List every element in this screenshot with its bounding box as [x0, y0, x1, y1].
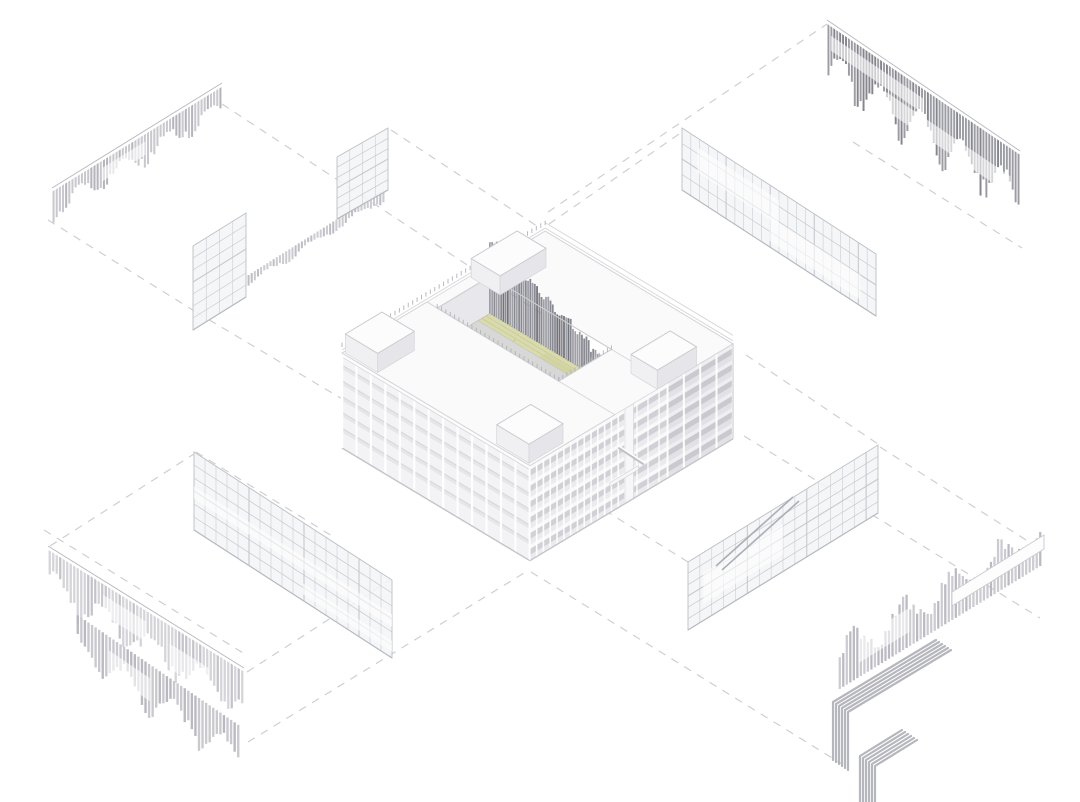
exploded-axonometric-diagram: Architectural exploded axonometric: cent… — [0, 0, 1080, 802]
diagram-canvas — [0, 0, 1080, 802]
